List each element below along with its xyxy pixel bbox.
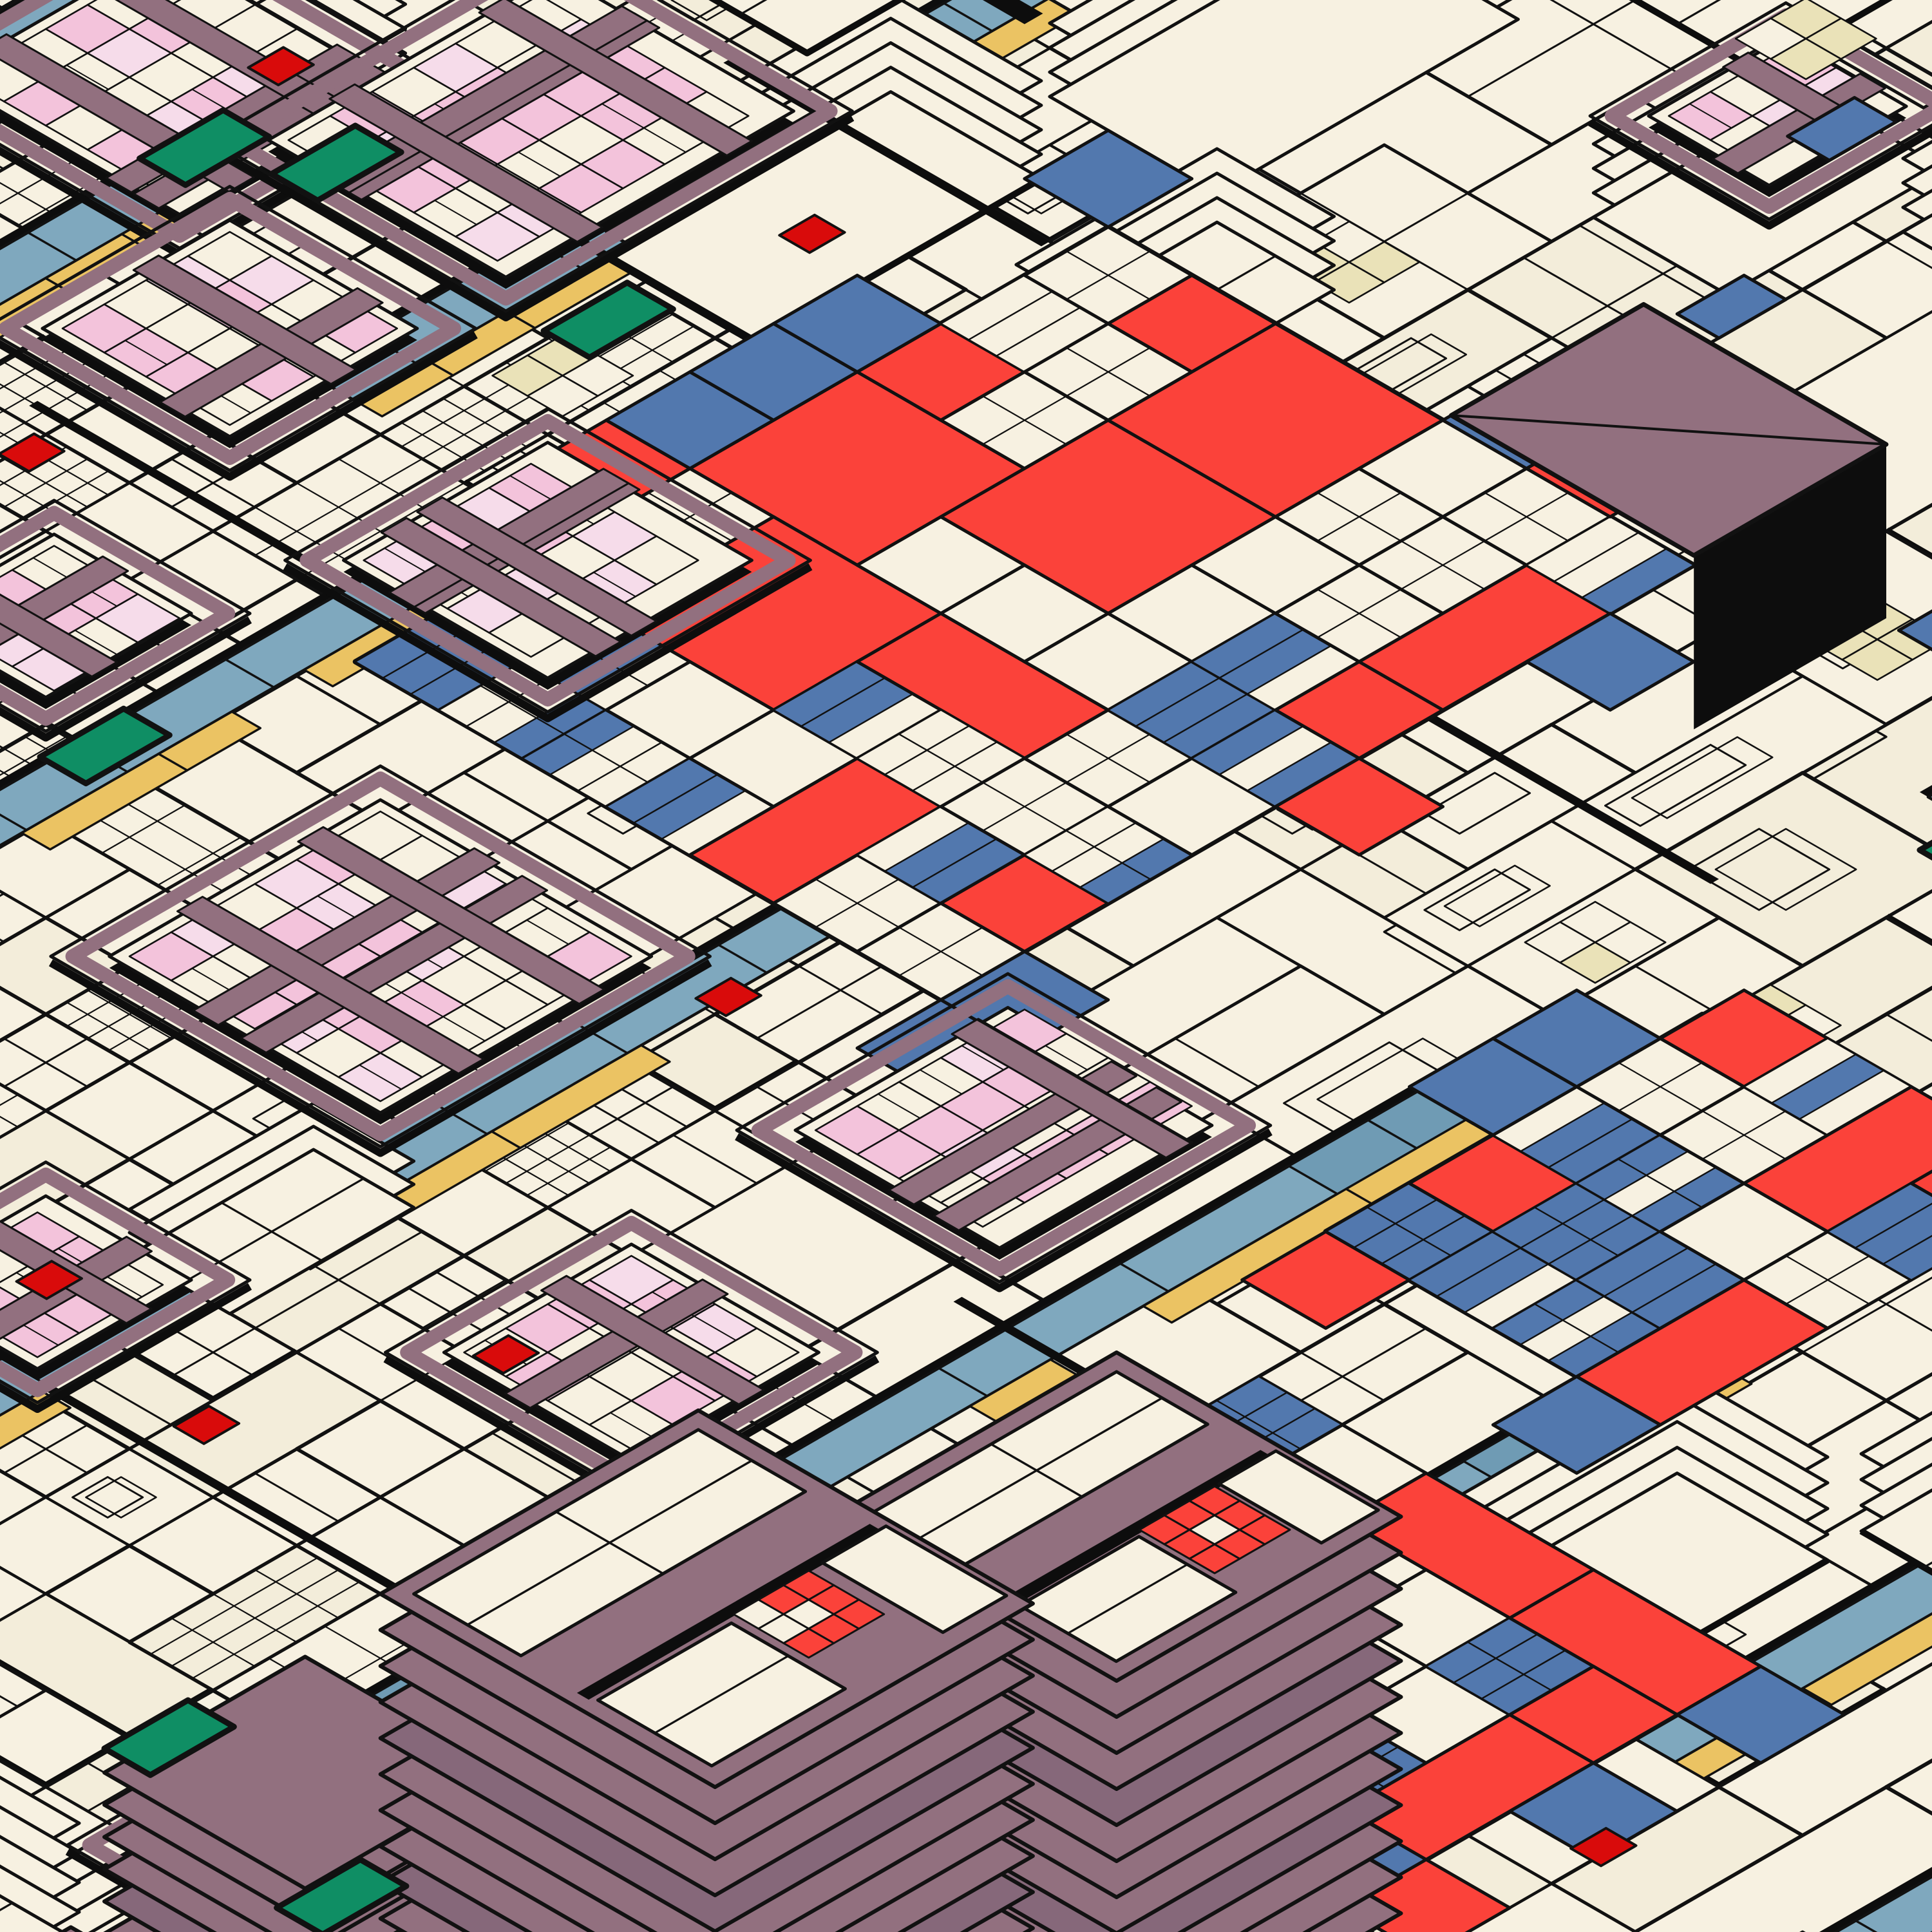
art-canvas	[0, 0, 1932, 1932]
generative-isometric-artwork	[0, 0, 1932, 1932]
